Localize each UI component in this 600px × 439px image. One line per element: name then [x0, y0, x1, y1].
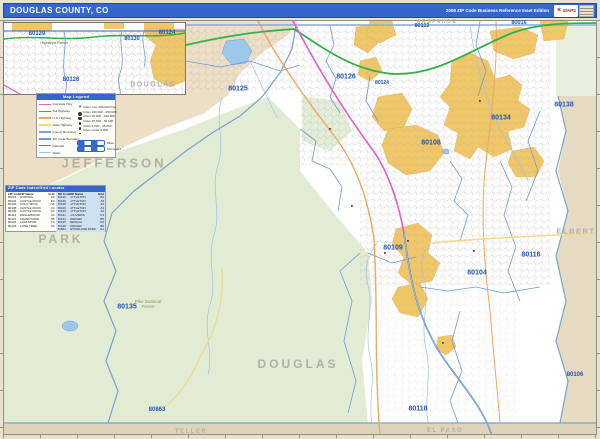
- legend-city-label: Cities over 250,000 Pop.: [83, 105, 117, 109]
- legend-city-item: ✶Cities over 250,000 Pop.: [77, 105, 121, 110]
- zip-table-right: ZIP CodeZIP NameGrid80125LITTLETONB28012…: [56, 192, 106, 233]
- zip-table-cell: A4: [48, 225, 55, 229]
- zip-table-cell: WOODLAND PARK: [70, 228, 98, 232]
- map-legend: Map Legend Interstate Hwy.Toll HighwayU.…: [36, 93, 116, 158]
- legend-item: Railroad: [39, 143, 75, 148]
- legend-city-classes: ✶Cities over 250,000 Pop.Cities 100,000 …: [77, 105, 121, 133]
- legend-city-item: Cities 50,000 - 100,000: [77, 114, 121, 119]
- compass-logo-icon: ✶: [556, 7, 562, 14]
- legend-line-sample: [39, 131, 51, 132]
- legend-line-sample: [39, 104, 51, 105]
- zip-table-left: ZIP CodeZIP NameGrid80016AURORAA680104CA…: [6, 192, 56, 233]
- legend-city-column: ✶Cities over 250,000 Pop.Cities 100,000 …: [75, 101, 121, 156]
- legend-line-sample: [39, 111, 51, 112]
- legend-item: Toll Highway: [39, 109, 75, 114]
- legend-item: Interstate Hwy.: [39, 102, 75, 107]
- legend-line-label: Railroad: [53, 144, 65, 148]
- legend-item: Water: [39, 150, 75, 155]
- frame-ticks-bottom: [3, 435, 597, 438]
- zip-index-table: ZIP Code Index/Grid Locator ZIP CodeZIP …: [5, 185, 106, 232]
- legend-line-sample: [39, 145, 51, 146]
- legend-city-label: Cities 100,000 - 250,000: [83, 110, 117, 114]
- brand-logo-text: MAPS: [563, 8, 576, 13]
- scale-bar-row: Kilometers: [77, 146, 121, 152]
- zip-table-row: 80863WOODLAND PARKG1: [58, 228, 105, 232]
- page-title: DOUGLAS COUNTY, CO: [4, 6, 109, 15]
- legend-line-label: Interstate Hwy.: [53, 102, 73, 106]
- legend-line-sample: [39, 117, 51, 118]
- legend-city-label: Cities 50,000 - 100,000: [83, 114, 115, 118]
- legend-line-label: Water: [53, 151, 61, 155]
- legend-line-label: County Boundary: [53, 130, 77, 134]
- zip-table-cell: LONE TREE: [20, 225, 48, 229]
- legend-line-sample: [39, 152, 51, 153]
- legend-scale-bars: MilesKilometers: [77, 140, 121, 152]
- legend-line-sample: [39, 124, 51, 125]
- legend-line-label: State Highway: [53, 123, 73, 127]
- legend-line-label: Toll Highway: [53, 109, 70, 113]
- legend-city-label: Cities 5,000 - 25,000: [83, 124, 112, 128]
- scale-bar-label: Miles: [107, 141, 114, 145]
- zip-table-cell: G1: [97, 228, 104, 232]
- inset-graphic: [4, 23, 185, 94]
- scale-bar: [77, 140, 105, 146]
- legend-item: State Highway: [39, 123, 75, 128]
- legend-line-sample: [39, 138, 51, 139]
- legend-city-label: Cities under 5,000: [83, 128, 108, 132]
- scale-bar: [77, 146, 105, 152]
- edition-info-box: [579, 5, 594, 17]
- map-poster: DOUGLAS COUNTY, CO 2008 ZIP Code Busines…: [0, 0, 600, 439]
- legend-item: ZIP Code Boundary: [39, 136, 75, 141]
- legend-city-item: Cities under 5,000: [77, 128, 121, 133]
- edition-subtitle: 2008 ZIP Code Business Reference Inset E…: [446, 8, 549, 13]
- legend-city-label: Cities 25,000 - 50,000: [83, 119, 113, 123]
- brand-logo: ✶ MAPS: [554, 5, 578, 17]
- legend-item: County Boundary: [39, 129, 75, 134]
- inset-map: 80129Highlands Ranch801308012480126DOUGL…: [3, 22, 186, 95]
- zip-table-row: 80124LONE TREEA4: [8, 225, 55, 229]
- city-dot-icon: [79, 133, 81, 135]
- scale-bar-label: Kilometers: [107, 147, 121, 151]
- legend-line-samples: Interstate Hwy.Toll HighwayU.S. HighwayS…: [39, 101, 75, 156]
- legend-line-label: U.S. Highway: [53, 116, 72, 120]
- zip-table-cell: 80124: [8, 225, 20, 229]
- legend-item: U.S. Highway: [39, 116, 75, 121]
- title-bar: DOUGLAS COUNTY, CO 2008 ZIP Code Busines…: [3, 3, 597, 18]
- zip-table-cell: 80863: [58, 228, 70, 232]
- legend-city-item: Cities 100,000 - 250,000: [77, 109, 121, 114]
